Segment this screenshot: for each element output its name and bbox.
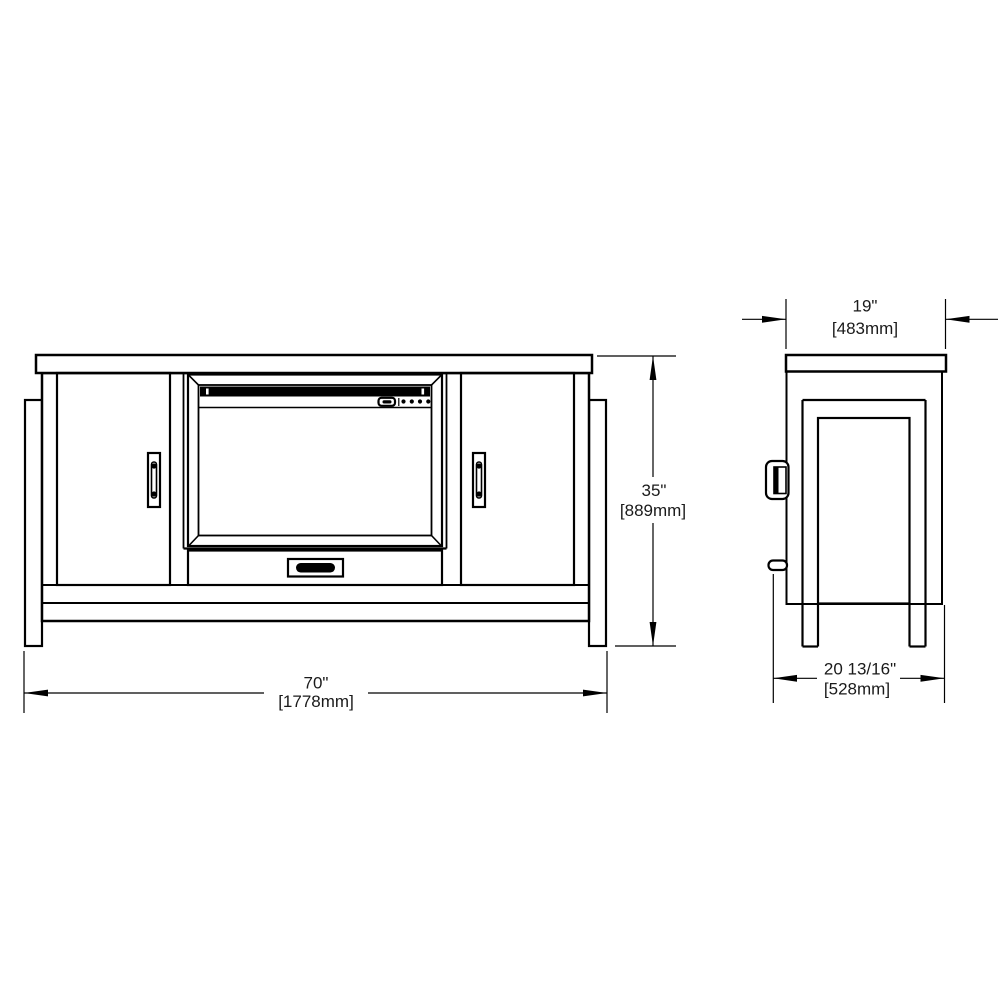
arrow-left-icon [24, 690, 48, 697]
height-label-mm: [889mm] [620, 501, 686, 520]
control-button-icon [418, 399, 422, 403]
front-view [25, 355, 606, 646]
arrow-up-icon [650, 356, 657, 380]
arrow-right-icon [583, 690, 607, 697]
side-drawer-knob-profile [769, 561, 788, 571]
fireplace-header-band [200, 387, 430, 397]
counter-top [36, 355, 592, 373]
control-button-icon [401, 399, 405, 403]
side-recessed-panel [818, 418, 910, 604]
side-counter-top [786, 355, 946, 372]
arrow-left-icon [773, 675, 797, 682]
technical-drawing: 70" [1778mm] 35" [889mm] 19" [483mm] 20 … [0, 0, 1000, 1000]
left-handle-bottom-screw-icon [151, 491, 156, 496]
header-band-left-tick [206, 389, 209, 395]
front-right-side-panel [589, 400, 606, 646]
overall-depth-label-mm: [528mm] [824, 679, 890, 698]
width-label-mm: [1778mm] [278, 692, 354, 711]
drawer-handle-pull [296, 563, 335, 573]
front-left-side-panel [25, 400, 42, 646]
side-leg-panel [803, 400, 926, 647]
right-door-handle-plate [473, 453, 485, 507]
control-button-icon [410, 399, 414, 403]
side-door-handle-profile [766, 461, 789, 499]
side-handle-grip-edge [774, 467, 779, 494]
drawer [188, 551, 442, 586]
arrow-right-icon [921, 675, 945, 682]
left-door-handle [148, 453, 160, 507]
overall-depth-label-inches: 20 13/16" [824, 659, 896, 678]
arrow-down-icon [650, 622, 657, 646]
height-label-inches: 35" [642, 481, 667, 500]
side-body [787, 372, 943, 605]
dimension-depth: 19" [483mm] [742, 297, 998, 350]
dimension-height: 35" [889mm] [597, 356, 686, 646]
dimension-width: 70" [1778mm] [24, 651, 607, 713]
left-door-handle-plate [148, 453, 160, 507]
depth-label-inches: 19" [853, 297, 878, 316]
control-button-icon [426, 399, 430, 403]
width-label-inches: 70" [304, 674, 329, 693]
side-view [766, 355, 946, 647]
dimension-drawing-canvas: 70" [1778mm] 35" [889mm] 19" [483mm] 20 … [0, 0, 1000, 1000]
depth-label-mm: [483mm] [832, 319, 898, 338]
fireplace-insert [188, 375, 442, 547]
arrow-right-icon [762, 316, 786, 323]
left-handle-top-screw-icon [151, 463, 156, 468]
control-display-bar [383, 400, 392, 403]
arrow-left-icon [946, 316, 970, 323]
right-door-handle [473, 453, 485, 507]
right-handle-bottom-screw-icon [476, 491, 481, 496]
header-band-right-tick [422, 389, 425, 395]
dimension-overall-depth: 20 13/16" [528mm] [773, 574, 944, 703]
right-handle-top-screw-icon [476, 463, 481, 468]
